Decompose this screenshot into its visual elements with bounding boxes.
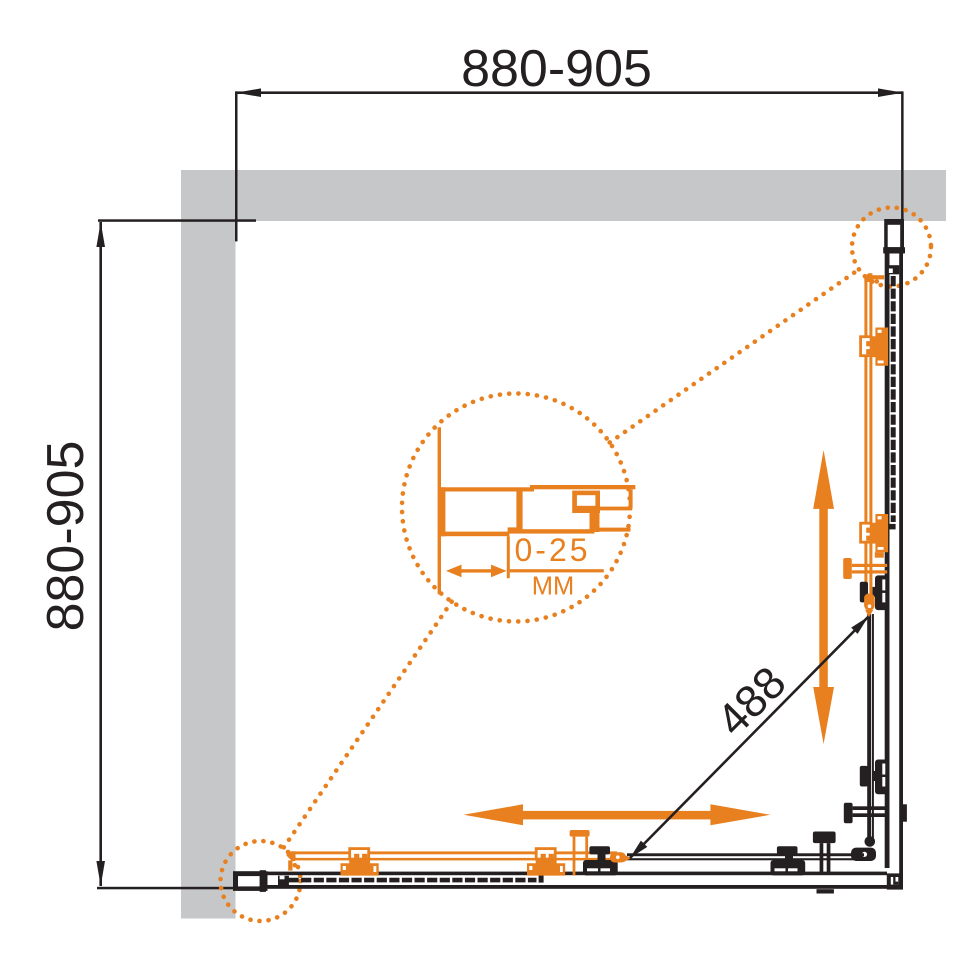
svg-text:488: 488 [706, 656, 795, 745]
svg-text:ММ: ММ [532, 573, 574, 601]
svg-text:880-905: 880-905 [37, 441, 95, 632]
svg-text:880-905: 880-905 [461, 40, 652, 98]
svg-text:0-25: 0-25 [515, 532, 591, 568]
